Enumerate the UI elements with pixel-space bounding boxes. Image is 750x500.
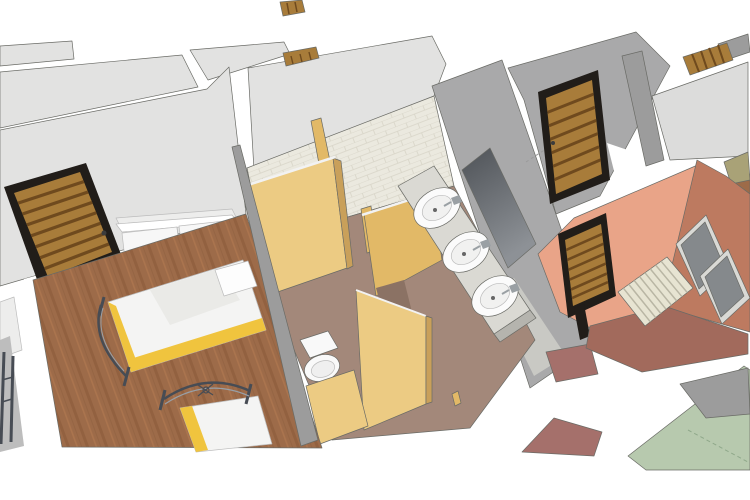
basin-2-drain [462,252,466,256]
exterior-wall-band [0,41,74,66]
door-top-sliver [280,0,305,16]
stall-front-wood-edge [426,316,432,404]
bedroom-door-knob [102,231,107,236]
floorplan-render: 3D cutaway floor-plan rendering of a dor… [0,0,750,500]
corridor-door-knob [551,141,555,145]
basin-3-drain [491,296,495,300]
corridor-wall-gap [607,143,645,183]
lower-room-floor-brick [522,418,602,456]
basin-1-drain [433,208,437,212]
top-right-room-floor [652,62,748,160]
render-canvas: 3D cutaway floor-plan rendering of a dor… [0,0,750,500]
